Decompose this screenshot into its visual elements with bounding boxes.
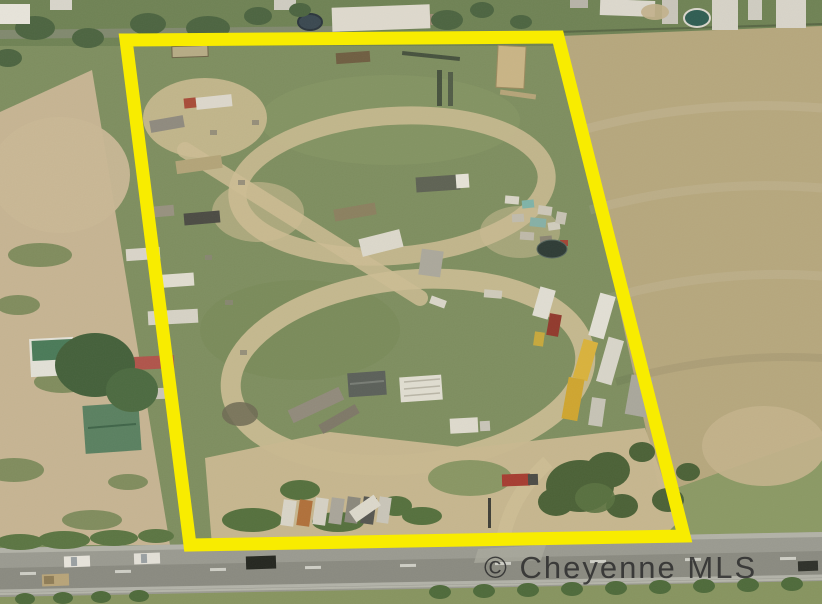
- mls-watermark: © Cheyenne MLS: [484, 550, 757, 586]
- aerial-photo: © Cheyenne MLS: [0, 0, 822, 604]
- aerial-photo-svg: [0, 0, 822, 604]
- photo-grain-overlay: [0, 0, 822, 604]
